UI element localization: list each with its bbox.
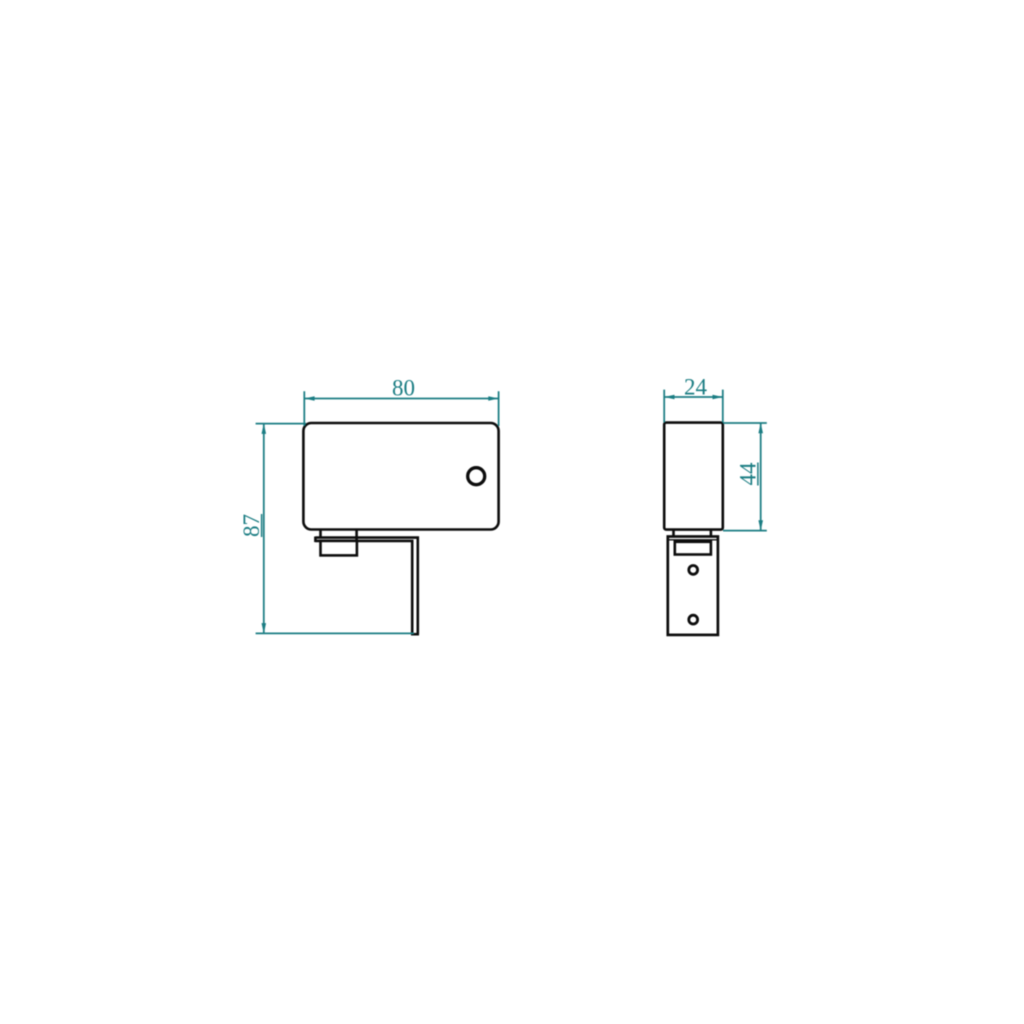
- svg-text:87: 87: [239, 514, 264, 537]
- svg-text:44: 44: [735, 462, 760, 486]
- svg-text:80: 80: [392, 376, 415, 401]
- svg-text:24: 24: [684, 375, 708, 400]
